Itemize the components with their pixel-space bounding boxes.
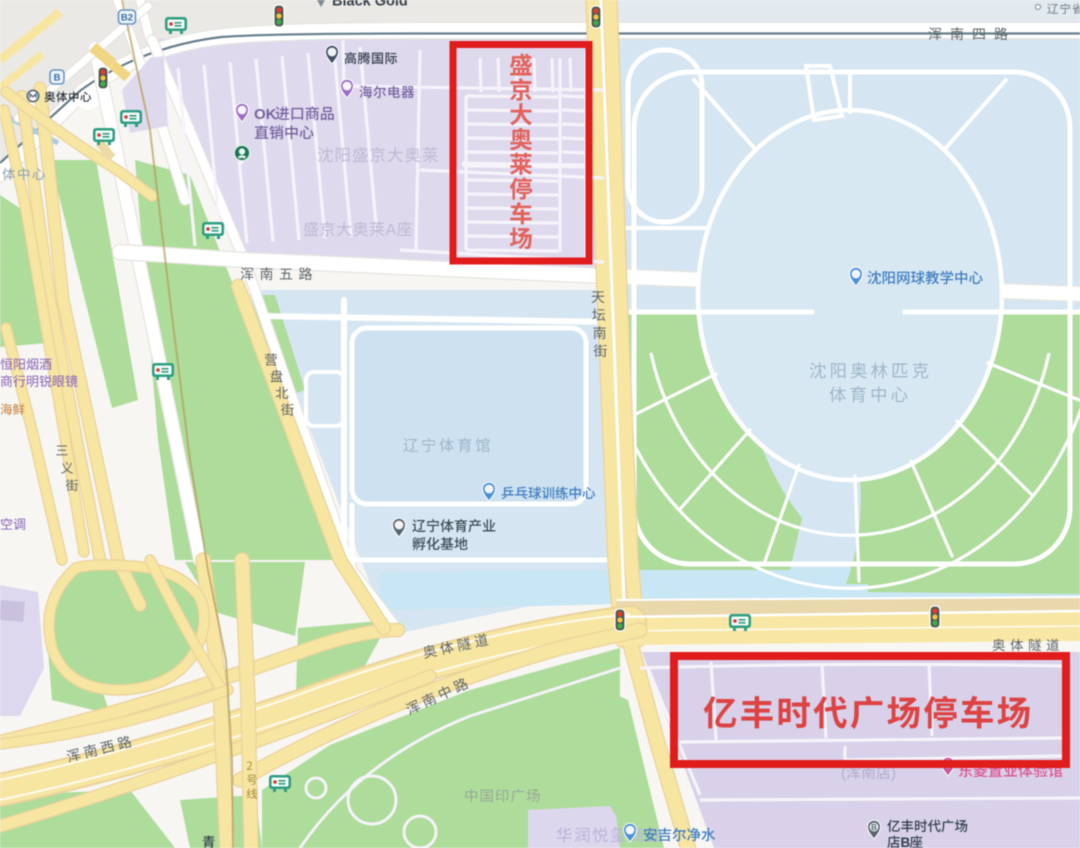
svg-text:B2: B2	[121, 13, 133, 24]
svg-text:OK: OK	[254, 106, 277, 123]
svg-text:B: B	[871, 823, 877, 832]
svg-text:A: A	[386, 222, 397, 239]
svg-text:Black Gold: Black Gold	[332, 0, 408, 10]
svg-text:B: B	[54, 73, 61, 84]
svg-text:B: B	[901, 835, 911, 848]
